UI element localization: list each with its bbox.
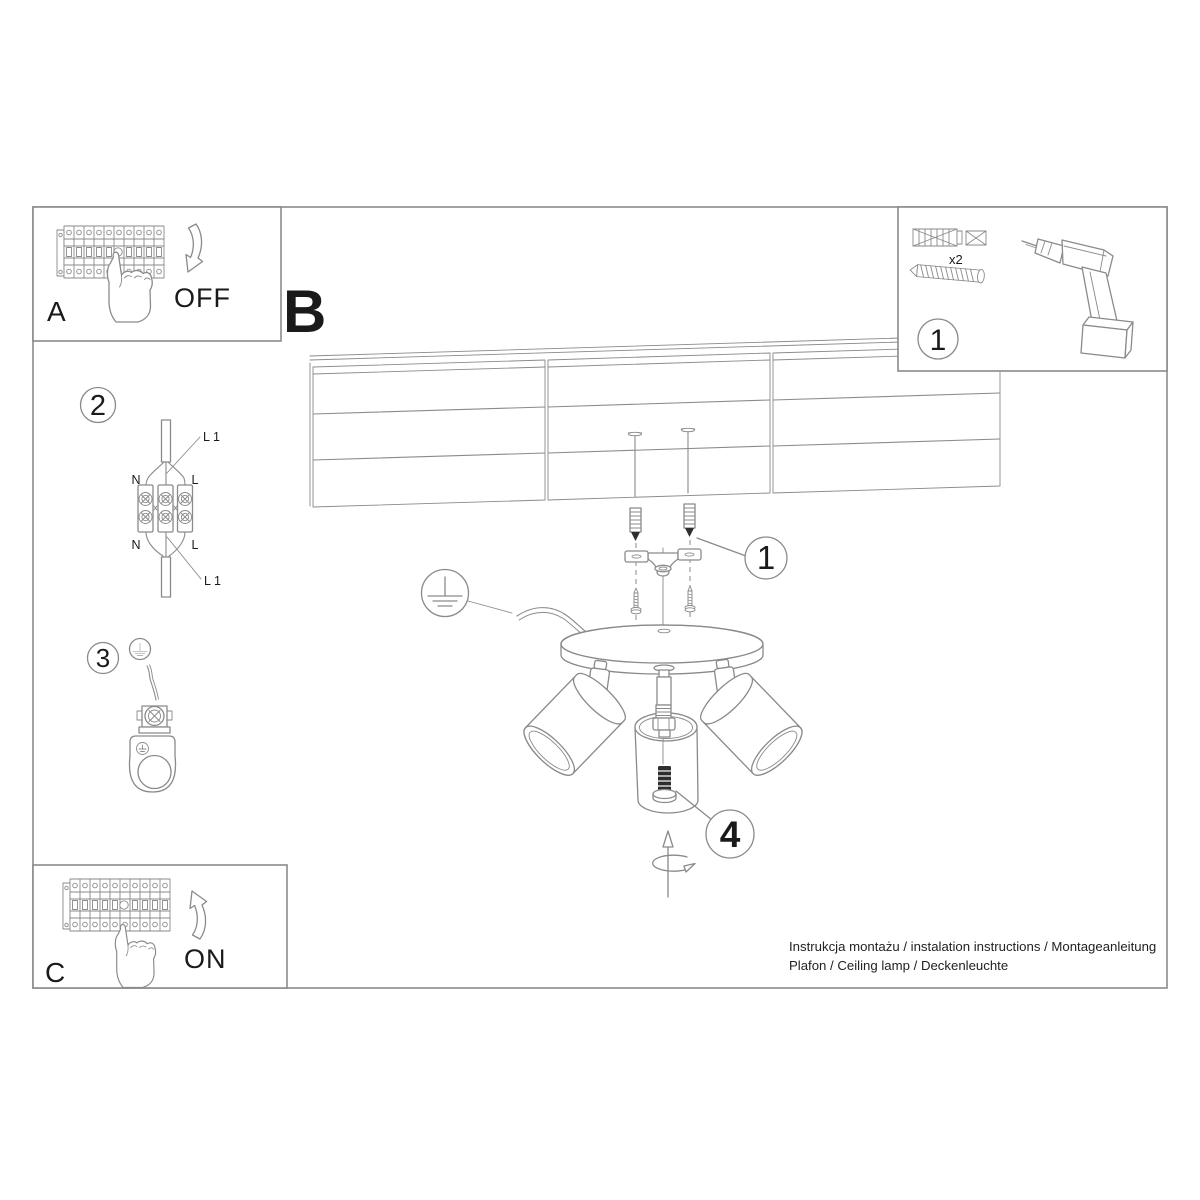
box-c-label: C [45, 957, 65, 988]
wall-plug-icon [913, 229, 986, 246]
wall-anchor-icon [684, 504, 695, 537]
footer-line-2: Plafon / Ceiling lamp / Deckenleuchte [789, 958, 1008, 973]
ground-symbol-small-icon [130, 639, 151, 660]
footer-line-1: Instrukcja montażu / instalation instruc… [789, 939, 1156, 954]
lamp-assembly: 4 [422, 570, 809, 898]
ground-lug [129, 736, 175, 792]
wall-anchor-icon [630, 508, 641, 541]
box-a-label: A [47, 296, 66, 327]
canopy-screw-icon [685, 586, 695, 612]
section-label-b: B [283, 278, 326, 345]
canopy-screw-icon [631, 588, 641, 614]
off-label: OFF [174, 283, 231, 313]
box-power-on: C ON [33, 865, 287, 988]
cable-top [162, 420, 171, 462]
rotation-arrow-icon [653, 831, 695, 897]
breaker-panel-icon [63, 879, 170, 931]
live-wire-label-top: L 1 [203, 430, 220, 444]
footer: Instrukcja montażu / instalation instruc… [789, 939, 1156, 973]
callout-bulb-number: 4 [720, 814, 741, 855]
on-label: ON [184, 944, 227, 974]
parts-step-number: 1 [930, 324, 947, 357]
anchor-qty-label: x2 [949, 252, 963, 267]
ground-symbol-icon [422, 570, 513, 617]
ground-step-number: 3 [96, 643, 110, 673]
instruction-drawing: 1 [0, 0, 1200, 1200]
instruction-sheet: 1 [0, 0, 1200, 1200]
terminal-block [138, 485, 193, 532]
box-power-off: A OFF [33, 207, 281, 341]
center-stem [653, 665, 675, 737]
spot-shade-right [695, 667, 809, 782]
box-parts: x2 1 [898, 207, 1167, 371]
earth-terminal [137, 706, 172, 733]
ceiling-panels [310, 335, 1000, 507]
spot-shade-left [517, 667, 631, 782]
ground-connection-diagram: 3 [88, 639, 176, 793]
callout-leader [697, 538, 746, 556]
live-wire-label-bottom: L 1 [204, 574, 221, 588]
line-label-bottom: L [192, 538, 199, 552]
neutral-label-bottom: N [131, 538, 140, 552]
cable-bottom [162, 557, 171, 597]
callout-anchor-number: 1 [757, 539, 775, 576]
wiring-diagram: 2 L 1 N L N L L 1 [81, 388, 221, 598]
wiring-step-number: 2 [90, 390, 106, 422]
